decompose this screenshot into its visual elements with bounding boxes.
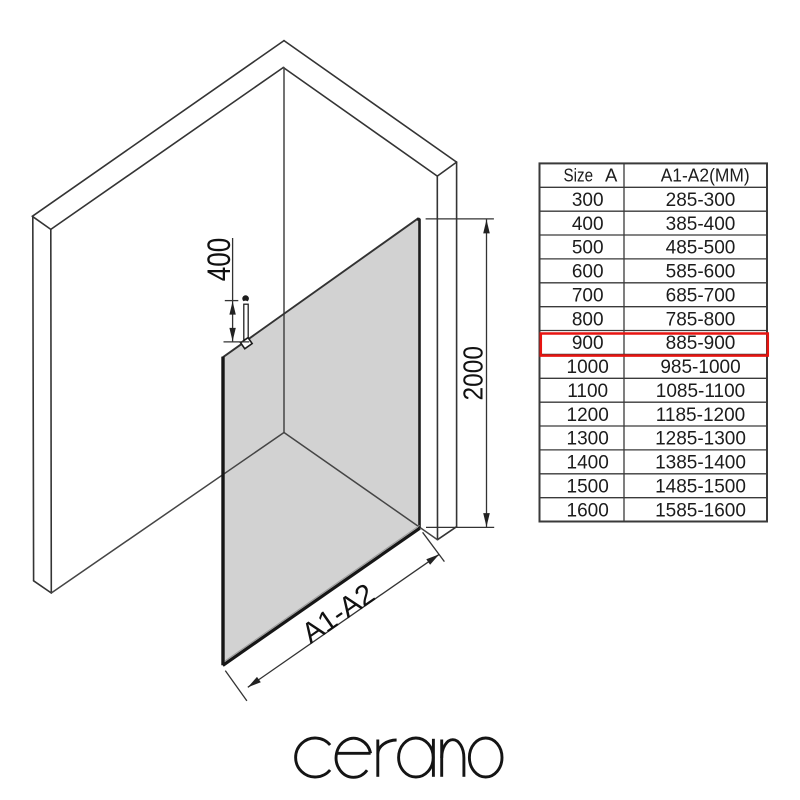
svg-text:1400: 1400	[567, 453, 609, 474]
svg-text:1500: 1500	[567, 477, 609, 498]
svg-text:500: 500	[572, 238, 604, 259]
svg-text:1485-1500: 1485-1500	[655, 477, 746, 498]
svg-text:1185-1200: 1185-1200	[656, 405, 745, 426]
svg-text:Size: Size	[564, 164, 594, 185]
svg-text:585-600: 585-600	[666, 262, 736, 283]
svg-text:1100: 1100	[567, 381, 608, 402]
svg-text:2000: 2000	[457, 346, 488, 401]
svg-text:A: A	[605, 164, 618, 185]
svg-text:485-500: 485-500	[666, 238, 736, 259]
svg-text:300: 300	[572, 190, 604, 211]
svg-text:1385-1400: 1385-1400	[655, 453, 746, 474]
svg-text:1285-1300: 1285-1300	[655, 429, 746, 450]
svg-text:385-400: 385-400	[666, 214, 736, 235]
svg-text:A1-A2(MM): A1-A2(MM)	[661, 164, 750, 185]
svg-text:1000: 1000	[567, 357, 609, 378]
svg-text:285-300: 285-300	[666, 190, 736, 211]
svg-text:400: 400	[572, 214, 604, 235]
svg-text:985-1000: 985-1000	[660, 357, 740, 378]
svg-text:900: 900	[572, 333, 604, 354]
svg-text:1600: 1600	[567, 500, 609, 521]
svg-text:685-700: 685-700	[666, 286, 736, 307]
svg-text:1585-1600: 1585-1600	[655, 500, 746, 521]
svg-text:785-800: 785-800	[666, 309, 736, 330]
svg-text:1085-1100: 1085-1100	[656, 381, 745, 402]
svg-text:885-900: 885-900	[666, 333, 736, 354]
svg-text:1200: 1200	[567, 405, 609, 426]
svg-text:600: 600	[572, 262, 604, 283]
svg-text:800: 800	[572, 309, 604, 330]
svg-text:700: 700	[572, 286, 604, 307]
svg-text:1300: 1300	[567, 429, 609, 450]
svg-text:400: 400	[201, 238, 237, 282]
